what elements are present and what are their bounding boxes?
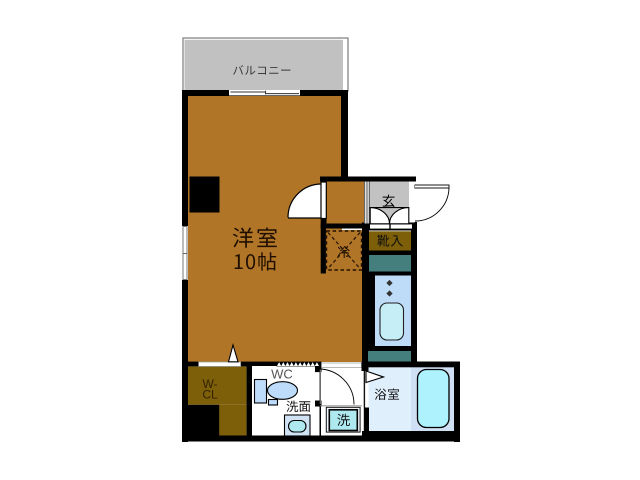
svg-text:WC: WC [271,366,293,381]
svg-text:CL: CL [202,388,218,402]
